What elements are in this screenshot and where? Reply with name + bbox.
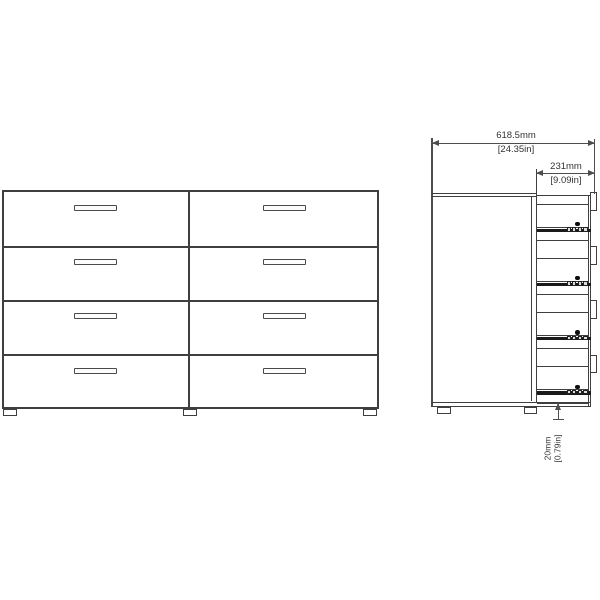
dimension-overall-in-label: [24.35in] [466,145,566,155]
slide-screw [567,281,571,285]
slide-screw [567,336,571,340]
slide-screw [572,336,576,340]
drawer-handle [263,205,306,211]
drawer-top-line [537,312,589,313]
front-drawer-divider [2,354,379,356]
drawer-handle [263,313,306,319]
dimension-foot-height-rotated-text: 20mm [0.79in] [543,434,562,462]
extension-tick-foot-height [553,419,564,420]
slide-screw [583,390,587,394]
front-drawer-divider [2,300,379,302]
slide-screw [578,336,582,340]
slide-roller [575,385,579,389]
side-panel-edge-inner [531,197,532,401]
drawer-handle [74,205,117,211]
side-top-panel [431,193,537,197]
drawer-handle [74,313,117,319]
drawer-bottom-line [537,348,589,349]
drawer-bottom-line [537,294,589,295]
drawer-bottom-line [537,403,589,404]
front-foot [3,409,17,416]
slide-screw [578,281,582,285]
drawer-top-line [537,204,589,205]
dimension-arrow-left [536,170,543,176]
dimension-arrow-left [432,140,439,146]
drawer-front-tab [590,246,597,265]
drawer-handle [74,368,117,374]
slide-screw [572,281,576,285]
drawer-front-tab [590,355,597,374]
drawer-top-line [537,366,589,367]
drawer-handle [263,368,306,374]
slide-roller [575,330,579,334]
slide-screw [578,227,582,231]
slide-screw [578,390,582,394]
dimension-foot-height-label: 20mm [0.79in] [530,425,575,471]
drawer-handle [74,259,117,265]
slide-screw [567,227,571,231]
dimension-line-overall [432,143,595,144]
drawer-front-tab [590,300,597,319]
slide-screw [567,390,571,394]
front-foot [183,409,197,416]
slide-screw [572,227,576,231]
drawer-front-tab [590,192,597,211]
side-back-edge-and-extension [431,138,432,407]
drawer-bottom-line [537,240,589,241]
dimension-drawer-depth-in-label: [9.09in] [516,176,600,186]
slide-screw [583,281,587,285]
slide-screw [572,390,576,394]
slide-screw [583,227,587,231]
side-foot [524,407,538,414]
dimension-arrow-up [555,403,561,410]
dimension-arrow-right [588,170,595,176]
drawer-top-line [537,258,589,259]
dresser-technical-drawing: 618.5mm [24.35in] 231mm [9.09in] 20mm [0… [0,0,600,600]
dimension-foot-height-in-label: [0.79in] [552,434,562,462]
dimension-overall-mm-label: 618.5mm [466,131,566,141]
dimension-foot-height-mm-label: 20mm [543,434,553,462]
front-foot [363,409,377,416]
drawer-handle [263,259,306,265]
extension-line-front [594,139,595,195]
dimension-line-drawer-depth [536,173,595,174]
side-top-edge-front [537,195,592,196]
side-foot [437,407,451,414]
front-drawer-divider [2,246,379,248]
slide-screw [583,336,587,340]
